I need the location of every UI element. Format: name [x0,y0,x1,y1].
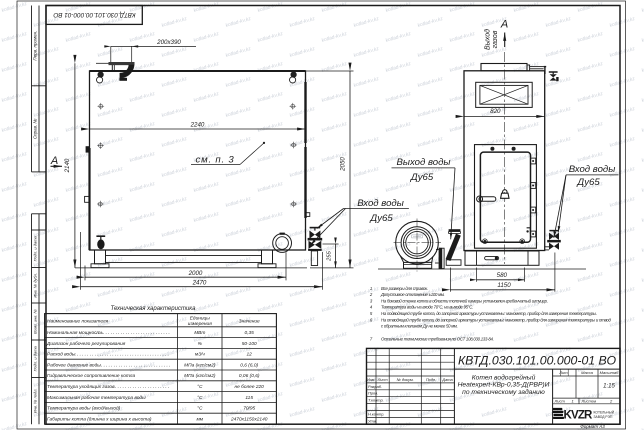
svg-text:Техническая характеристика: Техническая характеристика [111,306,197,312]
svg-text:2470х1150х2140: 2470х1150х2140 [230,416,268,422]
svg-text:Листов: Листов [581,399,597,404]
svg-text:На отводящей трубе котла, до з: На отводящей трубе котла, до запорной ар… [381,318,612,323]
svg-text:2000: 2000 [188,270,203,277]
svg-text:0,6 (6,0): 0,6 (6,0) [240,362,258,368]
svg-text:Выход воды: Выход воды [397,157,451,168]
svg-text:КВТД.030.101.00.000-01 ВО: КВТД.030.101.00.000-01 ВО [53,11,135,18]
svg-text:820: 820 [490,108,501,115]
svg-text:Пров.: Пров. [368,391,378,396]
svg-text:Температура уходящих газов: Температура уходящих газов [47,384,115,390]
svg-text:Наименование показателя: Наименование показателя [47,319,109,325]
svg-text:70/95: 70/95 [243,406,255,412]
svg-text:ЗАВОД РЭП: ЗАВОД РЭП [594,415,613,419]
svg-text:Диапазон рабочего регулировани: Диапазон рабочего регулирования [46,341,126,347]
svg-text:На боковой стенке котла в обла: На боковой стенке котла в области топочн… [381,298,548,303]
svg-text:Масштаб: Масштаб [600,370,619,375]
svg-text:КВТД.030.101.00.000-01 ВО: КВТД.030.101.00.000-01 ВО [458,354,617,368]
svg-text:Габариты котла (длинна х ширин: Габариты котла (длинна х ширина х высота… [47,416,152,422]
svg-text:газов: газов [492,30,499,48]
svg-text:Ду65: Ду65 [369,213,393,224]
svg-text:А: А [500,19,508,31]
svg-text:2470: 2470 [192,279,207,286]
svg-text:2240: 2240 [190,121,205,128]
svg-text:Н.контр.: Н.контр. [368,411,384,416]
svg-text:Значение: Значение [239,319,260,325]
svg-text:12: 12 [247,352,253,358]
svg-text:255: 255 [326,250,332,261]
svg-text:1:15: 1:15 [603,384,615,390]
svg-text:Масса: Масса [581,370,594,375]
svg-text:Перв. примен.: Перв. примен. [33,31,38,61]
svg-text:Максимальная рабочая температу: Максимальная рабочая температура воды [47,395,146,401]
svg-text:200х390: 200х390 [156,39,181,46]
svg-text:2050: 2050 [339,157,346,172]
svg-text:Расход воды: Расход воды [47,352,76,358]
svg-text:Изм.: Изм. [367,377,375,382]
svg-text:см. п. 3: см. п. 3 [195,155,234,166]
svg-text:Лист: Лист [554,399,566,404]
svg-text:№ докум.: № докум. [397,377,414,382]
svg-text:1: 1 [572,399,574,404]
svg-text:..............................: ...................................... [74,354,170,358]
svg-text:..............................: .............................. [95,332,170,336]
svg-text:50-100: 50-100 [242,341,257,347]
svg-text:115: 115 [245,395,253,401]
svg-text:Формат А3: Формат А3 [580,424,605,429]
svg-text:по техническому заданию: по техническому заданию [462,388,545,396]
svg-text:.......................: ....................... [112,386,170,390]
svg-text:Дата: Дата [441,377,453,382]
svg-text:На подводящей трубе котла, до: На подводящей трубе котла, до запорной а… [381,311,597,316]
svg-text:МПа (кгс/см2): МПа (кгс/см2) [184,373,216,379]
svg-text:Рабочее давление воды: Рабочее давление воды [47,362,101,368]
svg-text:Гидравлическое сопротивление к: Гидравлическое сопротивление котла [47,373,135,379]
svg-text:измерения: измерения [188,322,212,327]
svg-text:МВт: МВт [194,330,205,336]
svg-text:0,06 (0,6): 0,06 (0,6) [239,373,260,379]
svg-text:°С: °С [197,395,203,401]
svg-text:1150: 1150 [497,282,511,289]
svg-text:Инв. № подл.: Инв. № подл. [32,388,37,413]
svg-text:Температура воды (вход/выход): Температура воды (вход/выход) [47,406,121,412]
svg-text:Выход: Выход [484,29,492,50]
svg-text:Лит.: Лит. [558,370,568,375]
svg-text:Heatexpert-КВр-0,35-Д(РВР)И: Heatexpert-КВр-0,35-Д(РВР)И [458,382,550,389]
svg-text:м3/ч: м3/ч [195,352,205,358]
svg-text:Котел водогрейный: Котел водогрейный [472,373,536,381]
svg-text:Ду65: Ду65 [410,172,434,183]
svg-text:Вход воды: Вход воды [569,164,616,175]
svg-text:мм: мм [197,417,204,422]
svg-text:Температура воды на входе 70°: Температура воды на входе 70°С, на выход… [381,305,473,310]
svg-text:0,35: 0,35 [245,330,255,336]
svg-text:Подп.: Подп. [426,377,436,382]
svg-text:Единицы: Единицы [190,316,211,322]
svg-text:Справ. №: Справ. № [33,119,38,140]
svg-text:Утв.: Утв. [368,418,377,423]
svg-text:с обратным клапаном Ду не мен: с обратным клапаном Ду не менее 50 мм. [381,324,458,329]
svg-text:Ду65: Ду65 [576,177,600,188]
svg-text:Лист: Лист [377,377,389,382]
svg-text:%: % [198,341,203,347]
svg-text:Подп. и дата: Подп. и дата [32,236,37,262]
svg-text:KVZR: KVZR [563,410,593,422]
svg-text:Остальные технические требован: Остальные технические требования по ОСТ … [381,337,494,342]
svg-text:А: А [50,155,58,167]
svg-text:Взам. инв. №: Взам. инв. № [32,308,37,333]
svg-text:Разраб.: Разраб. [368,384,382,389]
svg-text:Допустимое отклонение ±100 мм: Допустимое отклонение ±100 мм. [380,292,445,297]
svg-text:Инв. № дубл.: Инв. № дубл. [32,273,37,298]
svg-text:580: 580 [497,272,508,279]
svg-text:МПа (кгс/см2): МПа (кгс/см2) [184,362,216,368]
svg-text:Все размеры для справок.: Все размеры для справок. [381,286,428,291]
svg-text:Подп. и дата: Подп. и дата [32,346,37,372]
svg-text:°С: °С [197,406,203,412]
svg-text:°С: °С [197,384,203,390]
svg-text:Вход воды: Вход воды [357,198,404,209]
svg-text:не более 220: не более 220 [235,384,265,390]
svg-text:Т.контр.: Т.контр. [368,398,384,403]
svg-text:.............................: ............................. [98,364,171,368]
svg-text:2140: 2140 [64,158,71,173]
